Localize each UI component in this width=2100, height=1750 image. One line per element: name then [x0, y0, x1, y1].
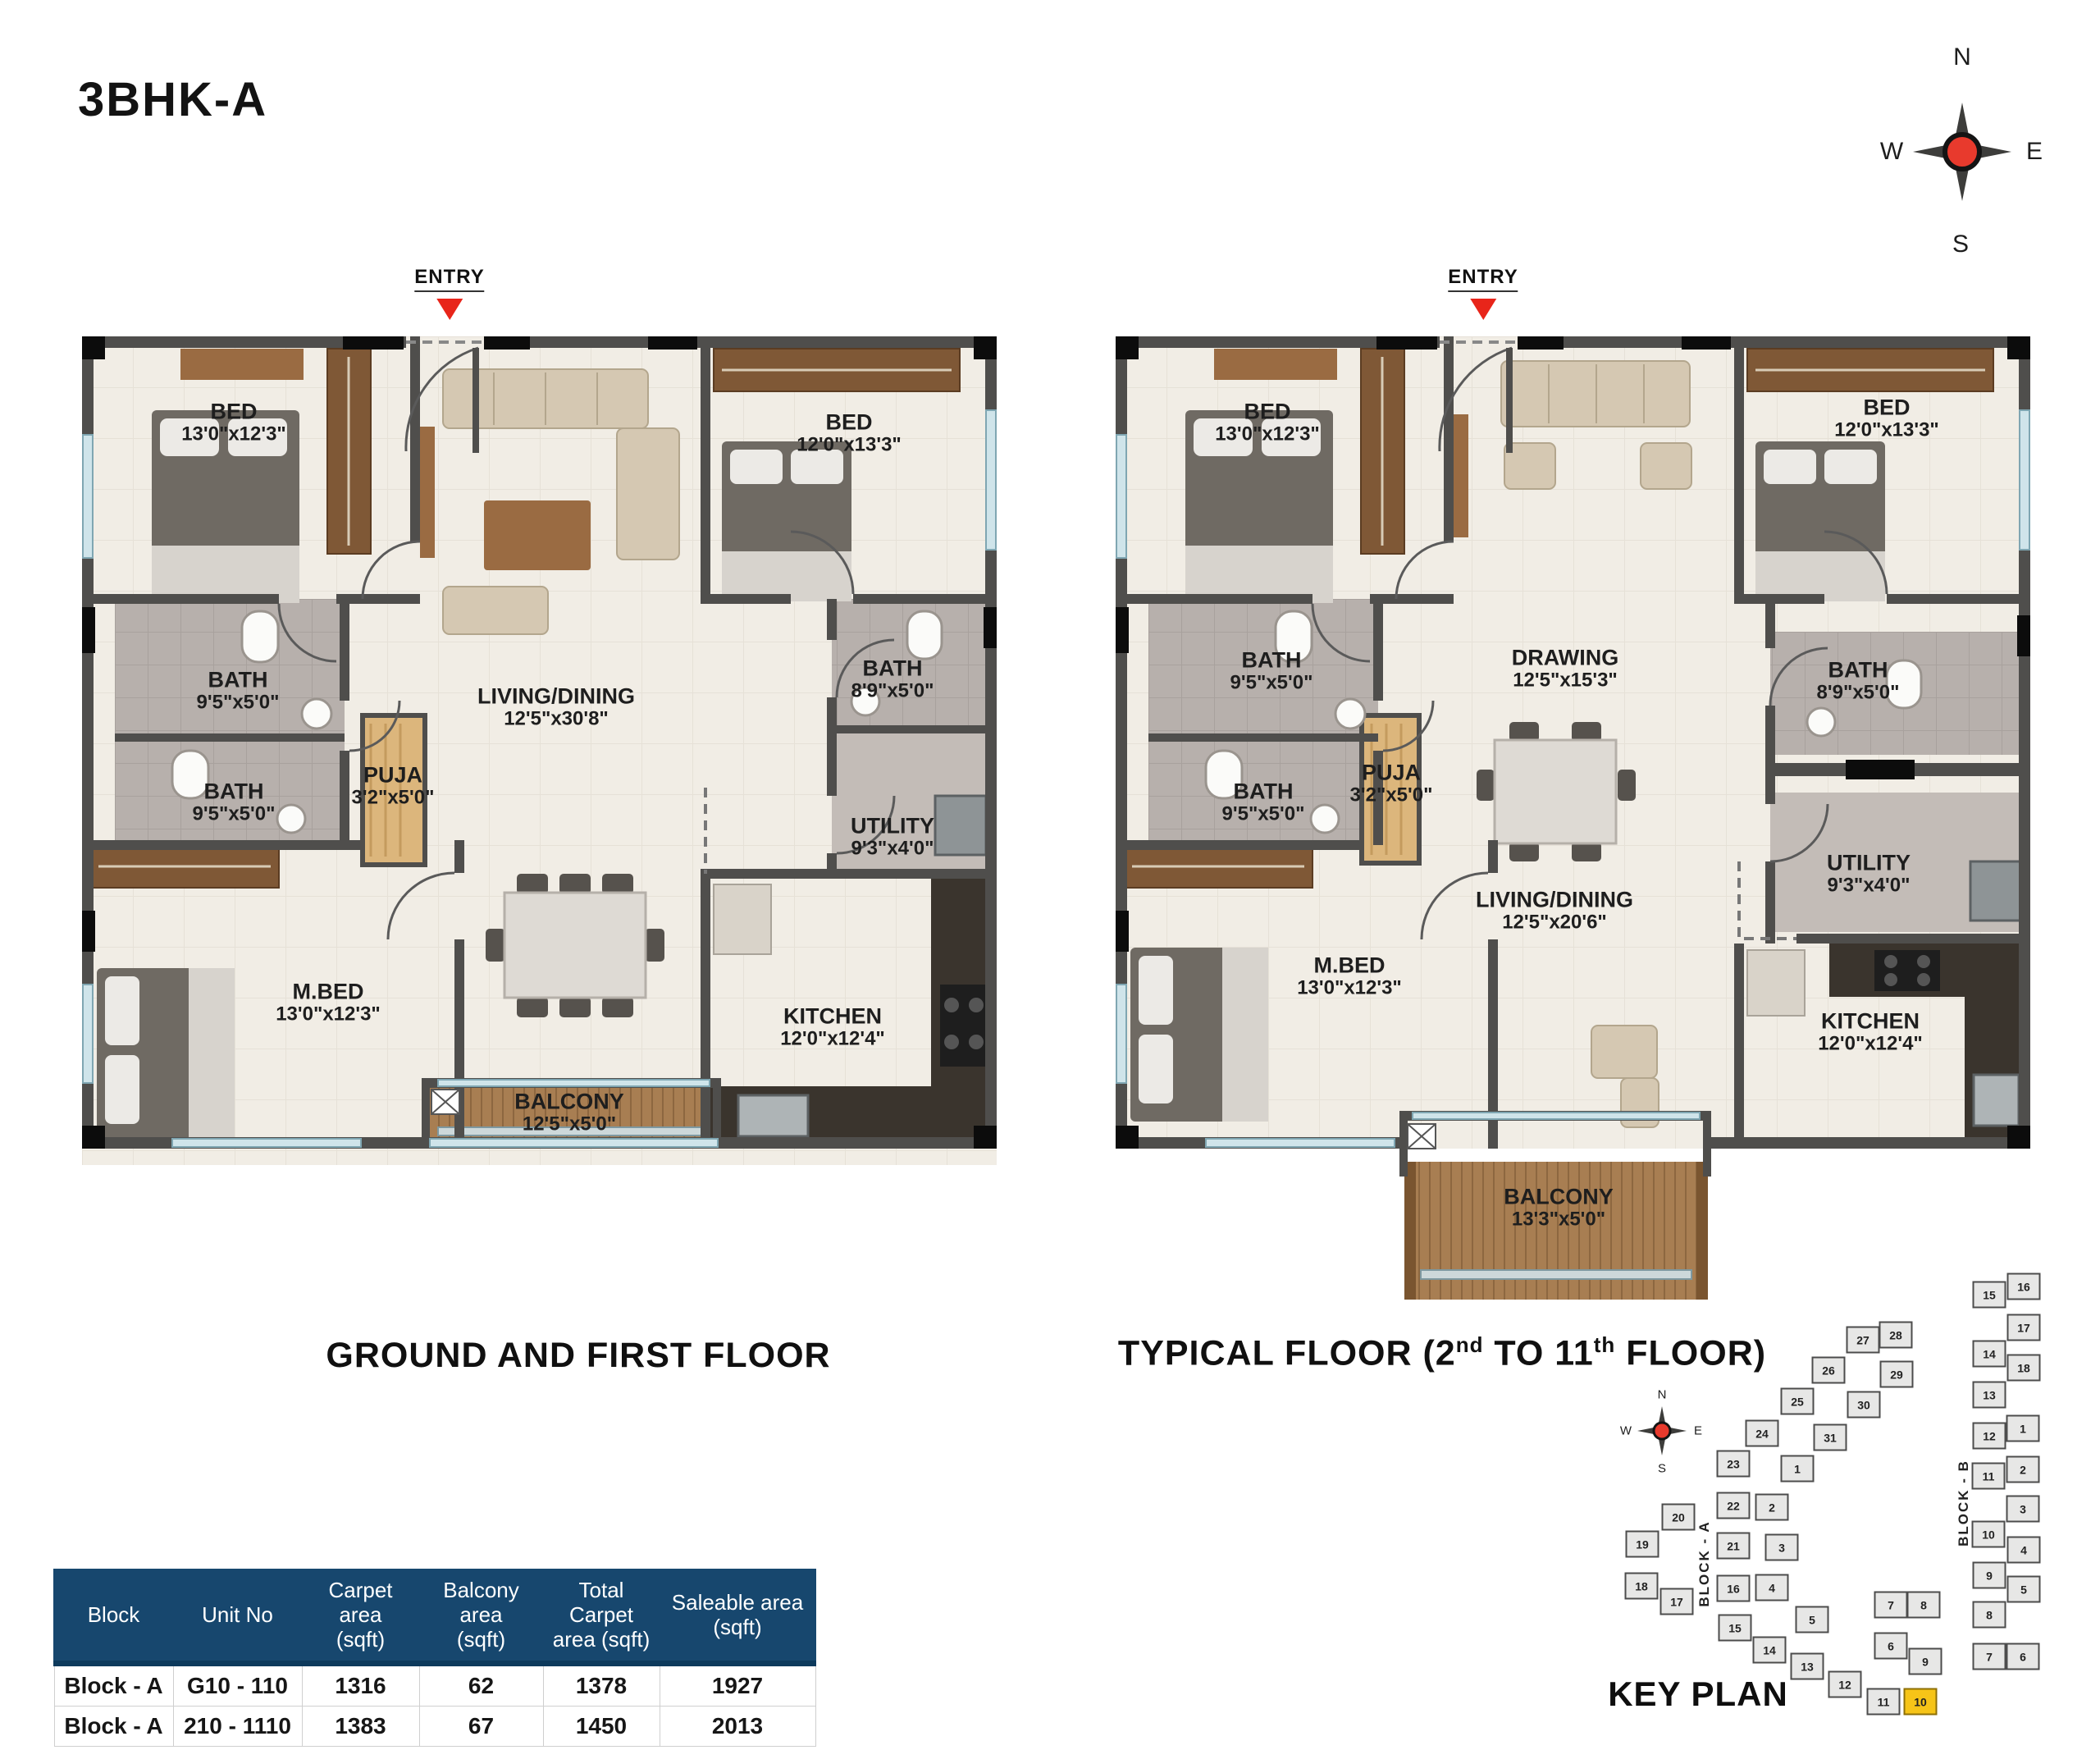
room-name: BATH [197, 667, 280, 692]
table-cell: 1927 [660, 1663, 815, 1706]
key-plan-unit-a-5: 5 [1796, 1606, 1829, 1633]
key-plan-unit-b-5: 5 [2007, 1576, 2041, 1603]
room-dimensions: 9'5"x5'0" [1230, 673, 1313, 695]
table-cell: 62 [419, 1663, 543, 1706]
room-dimensions: 9'5"x5'0" [197, 692, 280, 715]
entry-arrow-icon [436, 299, 463, 320]
table-header-cell: Carpet area (sqft) [302, 1570, 419, 1663]
key-plan-unit-a-17: 17 [1660, 1588, 1694, 1615]
room-name: BATH [193, 779, 276, 803]
key-plan-unit-a-7: 7 [1874, 1592, 1908, 1619]
floor-plan-ground-first: BED13'0"x12'3"BATH9'5"x5'0"BATH9'5"x5'0"… [82, 336, 997, 1165]
table-header-cell: Total Carpet area (sqft) [543, 1570, 660, 1663]
room-name: KITCHEN [1818, 1008, 1923, 1033]
key-plan-unit-b-16: 16 [2007, 1273, 2041, 1300]
key-plan-unit-a-31: 31 [1814, 1424, 1847, 1451]
room-dimensions: 12'5"x5'0" [514, 1114, 624, 1136]
caption-text: TO 11 [1483, 1333, 1593, 1373]
table-row: Block - AG10 - 11013166213781927 [54, 1663, 815, 1706]
key-plan-unit-a-23: 23 [1717, 1451, 1751, 1478]
room-name: BALCONY [514, 1089, 624, 1113]
entry-marker: ENTRY [1448, 266, 1518, 320]
room-dimensions: 8'9"x5'0" [851, 681, 934, 703]
room-label-bath: BATH8'9"x5'0" [1817, 657, 1900, 704]
compass-rose-icon [1911, 101, 2013, 203]
room-dimensions: 13'0"x12'3" [276, 1004, 381, 1026]
table-cell: 1378 [543, 1663, 660, 1706]
room-label-m-bed: M.BED13'0"x12'3" [276, 979, 381, 1026]
room-name: BALCONY [1504, 1184, 1614, 1209]
caption-typical-floor: TYPICAL FLOOR (2nd TO 11th FLOOR) [1118, 1332, 1766, 1373]
compass-e-label: E [2026, 138, 2043, 166]
room-label-puja: PUJA3'2"x5'0" [352, 762, 435, 809]
area-table: BlockUnit NoCarpet area (sqft)Balcony ar… [53, 1569, 816, 1747]
room-dimensions: 9'5"x5'0" [193, 804, 276, 826]
key-plan-unit-b-10: 10 [1972, 1521, 2006, 1548]
room-dimensions: 13'3"x5'0" [1504, 1209, 1614, 1231]
floor-plan-typical: BED13'0"x12'3"BATH9'5"x5'0"BATH9'5"x5'0"… [1116, 336, 2030, 1309]
key-plan-unit-b-4: 4 [2007, 1537, 2041, 1564]
room-label-kitchen: KITCHEN12'0"x12'4" [780, 1003, 885, 1050]
compass-s-label: S [1952, 231, 1969, 258]
room-dimensions: 12'5"x15'3" [1512, 670, 1619, 692]
key-plan-unit-a-26: 26 [1812, 1357, 1846, 1384]
key-plan-unit-a-6: 6 [1874, 1633, 1908, 1660]
room-name: BATH [851, 656, 934, 680]
key-plan-unit-a-27: 27 [1847, 1327, 1880, 1354]
room-dimensions: 13'0"x12'3" [1297, 978, 1402, 1000]
key-plan-unit-a-29: 29 [1880, 1361, 1914, 1388]
key-plan-unit-a-9: 9 [1909, 1648, 1942, 1675]
key-plan-unit-a-20: 20 [1662, 1504, 1696, 1531]
room-label-utility: UTILITY9'3"x4'0" [1827, 850, 1911, 897]
room-name: KITCHEN [780, 1003, 885, 1028]
room-name: UTILITY [851, 813, 934, 838]
room-dimensions: 12'0"x12'4" [780, 1029, 885, 1051]
room-dimensions: 3'2"x5'0" [1350, 785, 1433, 807]
key-plan-unit-a-3: 3 [1765, 1534, 1799, 1561]
caption-text: th [1594, 1332, 1616, 1357]
key-plan-unit-b-14: 14 [1973, 1341, 2006, 1368]
key-plan-unit-b-15: 15 [1973, 1282, 2006, 1309]
key-plan-unit-a-4: 4 [1755, 1574, 1789, 1602]
key-plan-unit-b-1: 1 [2006, 1415, 2040, 1442]
caption-ground-first-floor: GROUND AND FIRST FLOOR [326, 1336, 830, 1376]
table-header-cell: Saleable area (sqft) [660, 1570, 815, 1663]
key-plan-unit-a-1: 1 [1781, 1455, 1815, 1483]
caption-text: TYPICAL FLOOR (2 [1118, 1333, 1456, 1373]
room-name: BED [1215, 399, 1320, 423]
room-name: M.BED [276, 979, 381, 1003]
key-plan-unit-a-10: 10 [1904, 1688, 1938, 1716]
table-cell: 210 - 1110 [173, 1706, 302, 1746]
entry-label: ENTRY [1448, 266, 1518, 292]
key-plan-unit-b-12: 12 [1973, 1423, 2006, 1450]
key-plan-unit-b-2: 2 [2006, 1456, 2040, 1483]
room-label-living-dining: LIVING/DINING12'5"x20'6" [1476, 887, 1633, 934]
key-plan-unit-b-7: 7 [1973, 1643, 2006, 1670]
table-row: Block - A210 - 111013836714502013 [54, 1706, 815, 1746]
room-label-bath: BATH9'5"x5'0" [1222, 779, 1305, 825]
key-compass-e-label: E [1694, 1424, 1702, 1438]
room-dimensions: 9'3"x4'0" [1827, 875, 1911, 898]
room-label-bed: BED13'0"x12'3" [1215, 399, 1320, 445]
room-label-bed: BED12'0"x13'3" [1834, 395, 1939, 441]
key-plan-compass: N W E S [1621, 1388, 1703, 1478]
key-plan-unit-a-12: 12 [1828, 1671, 1862, 1698]
room-dimensions: 13'0"x12'3" [1215, 424, 1320, 446]
caption-text: FLOOR) [1615, 1333, 1766, 1373]
room-name: BATH [1222, 779, 1305, 803]
table-cell: 67 [419, 1706, 543, 1746]
room-name: M.BED [1297, 953, 1402, 977]
table-header-cell: Balcony area (sqft) [419, 1570, 543, 1663]
room-dimensions: 12'0"x13'3" [1834, 420, 1939, 442]
key-plan-unit-a-16: 16 [1717, 1575, 1751, 1602]
room-name: PUJA [352, 762, 435, 787]
key-compass-n-label: N [1658, 1388, 1667, 1402]
room-name: LIVING/DINING [477, 683, 635, 708]
room-dimensions: 12'0"x12'4" [1818, 1034, 1923, 1056]
room-dimensions: 9'5"x5'0" [1222, 804, 1305, 826]
room-dimensions: 8'9"x5'0" [1817, 683, 1900, 705]
compass-w-label: W [1880, 138, 1903, 166]
key-plan-unit-b-11: 11 [1972, 1463, 2006, 1490]
key-plan-unit-a-14: 14 [1753, 1637, 1787, 1664]
room-name: DRAWING [1512, 645, 1619, 669]
key-plan-title: KEY PLAN [1591, 1675, 1805, 1714]
room-label-kitchen: KITCHEN12'0"x12'4" [1818, 1008, 1923, 1055]
table-cell: G10 - 110 [173, 1663, 302, 1706]
entry-label: ENTRY [414, 266, 484, 292]
key-plan-unit-b-8: 8 [1973, 1602, 2006, 1629]
room-dimensions: 9'3"x4'0" [851, 838, 934, 861]
key-plan-unit-a-11: 11 [1867, 1688, 1901, 1716]
page-title: 3BHK-A [78, 72, 267, 127]
key-plan-unit-b-18: 18 [2007, 1355, 2041, 1382]
room-dimensions: 12'5"x30'8" [477, 709, 635, 731]
room-name: BATH [1230, 647, 1313, 672]
caption-text: GROUND AND FIRST FLOOR [326, 1336, 830, 1375]
caption-text: nd [1456, 1332, 1484, 1357]
table-cell: Block - A [54, 1706, 173, 1746]
key-plan-unit-a-8: 8 [1907, 1592, 1941, 1619]
room-dimensions: 12'5"x20'6" [1476, 912, 1633, 934]
key-compass-s-label: S [1658, 1462, 1666, 1476]
room-label-m-bed: M.BED13'0"x12'3" [1297, 953, 1402, 999]
key-plan-unit-b-3: 3 [2006, 1496, 2040, 1523]
key-plan-unit-a-19: 19 [1626, 1531, 1659, 1558]
key-plan-unit-a-15: 15 [1719, 1615, 1752, 1642]
key-plan-unit-b-9: 9 [1973, 1562, 2006, 1589]
compass: N W E S [1880, 39, 2044, 261]
room-label-balcony: BALCONY13'3"x5'0" [1504, 1184, 1614, 1231]
room-name: LIVING/DINING [1476, 887, 1633, 912]
room-label-bed: BED12'0"x13'3" [797, 409, 902, 456]
key-plan-unit-a-18: 18 [1625, 1573, 1659, 1600]
room-label-living-dining: LIVING/DINING12'5"x30'8" [477, 683, 635, 730]
compass-n-label: N [1953, 43, 1971, 71]
room-name: BATH [1817, 657, 1900, 682]
table-cell: 1383 [302, 1706, 419, 1746]
table-cell: 2013 [660, 1706, 815, 1746]
room-label-bath: BATH9'5"x5'0" [1230, 647, 1313, 694]
room-label-balcony: BALCONY12'5"x5'0" [514, 1089, 624, 1135]
entry-marker: ENTRY [414, 266, 484, 320]
table-cell: Block - A [54, 1663, 173, 1706]
block-b-label: BLOCK - B [1956, 1460, 1972, 1547]
room-label-bath: BATH8'9"x5'0" [851, 656, 934, 702]
key-compass-w-label: W [1620, 1424, 1632, 1438]
room-label-utility: UTILITY9'3"x4'0" [851, 813, 934, 860]
key-plan-unit-b-6: 6 [2006, 1643, 2040, 1670]
room-label-bed: BED13'0"x12'3" [181, 399, 286, 445]
room-dimensions: 3'2"x5'0" [352, 788, 435, 810]
block-a-label: BLOCK - A [1696, 1520, 1713, 1606]
table-header-cell: Unit No [173, 1570, 302, 1663]
room-label-bath: BATH9'5"x5'0" [193, 779, 276, 825]
key-plan-unit-a-21: 21 [1717, 1533, 1751, 1560]
table-header-cell: Block [54, 1570, 173, 1663]
room-name: PUJA [1350, 760, 1433, 784]
room-name: BED [1834, 395, 1939, 419]
table-cell: 1450 [543, 1706, 660, 1746]
key-compass-rose-icon [1637, 1406, 1687, 1455]
key-plan-unit-a-25: 25 [1781, 1388, 1815, 1415]
room-name: UTILITY [1827, 850, 1911, 875]
key-plan-unit-a-28: 28 [1879, 1322, 1913, 1349]
key-plan-unit-b-17: 17 [2007, 1314, 2041, 1341]
key-plan-unit-a-22: 22 [1717, 1492, 1751, 1519]
entry-arrow-icon [1470, 299, 1496, 320]
room-label-drawing: DRAWING12'5"x15'3" [1512, 645, 1619, 692]
key-plan-unit-a-2: 2 [1755, 1494, 1789, 1521]
key-plan-unit-b-13: 13 [1973, 1382, 2006, 1409]
room-label-bath: BATH9'5"x5'0" [197, 667, 280, 714]
room-name: BED [797, 409, 902, 434]
key-plan-unit-a-30: 30 [1847, 1391, 1881, 1419]
room-label-puja: PUJA3'2"x5'0" [1350, 760, 1433, 806]
key-plan-unit-a-24: 24 [1746, 1420, 1779, 1447]
room-name: BED [181, 399, 286, 423]
room-dimensions: 12'0"x13'3" [797, 435, 902, 457]
room-dimensions: 13'0"x12'3" [181, 424, 286, 446]
table-cell: 1316 [302, 1663, 419, 1706]
